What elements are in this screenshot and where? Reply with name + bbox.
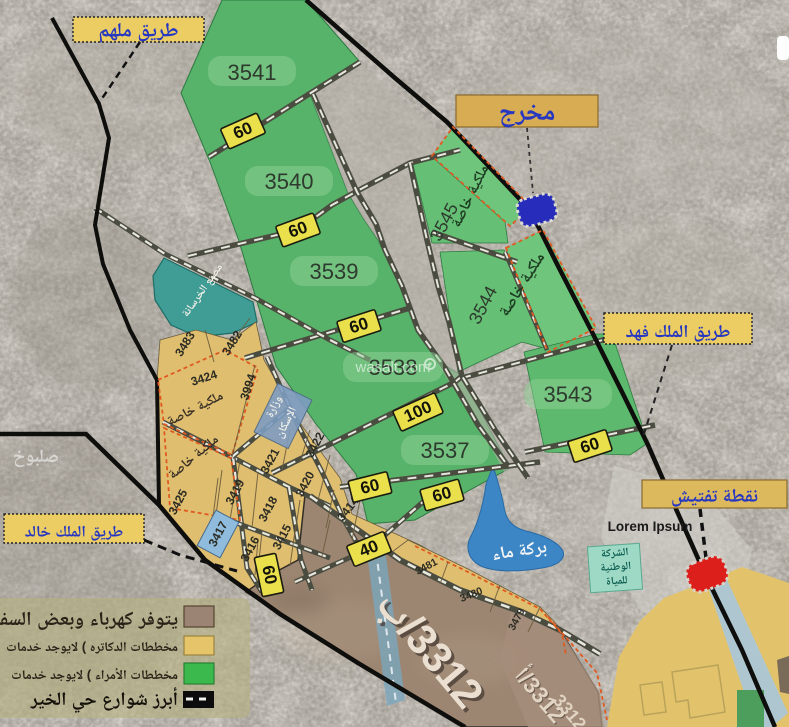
- svg-text:wasalt.com: wasalt.com: [354, 359, 430, 376]
- svg-text:3543: 3543: [544, 382, 593, 407]
- svg-text:60: 60: [258, 564, 281, 586]
- svg-text:Lorem Ipsum: Lorem Ipsum: [608, 519, 693, 534]
- svg-text:3540: 3540: [265, 169, 314, 194]
- svg-text:3541: 3541: [228, 60, 277, 85]
- svg-text:3539: 3539: [310, 259, 359, 284]
- svg-text:3537: 3537: [421, 438, 470, 463]
